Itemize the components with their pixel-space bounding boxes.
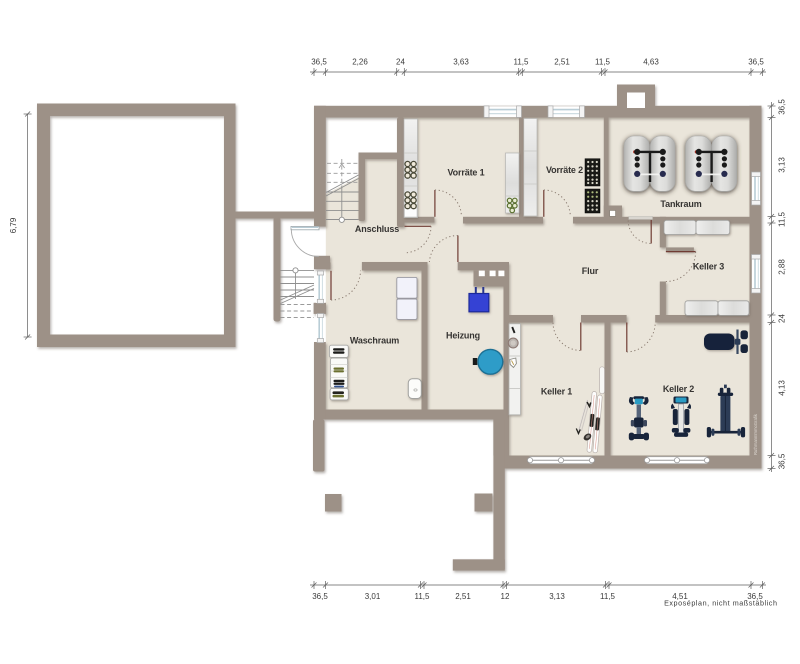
svg-text:36,5: 36,5 [748,58,764,67]
svg-text:Heizung: Heizung [446,331,480,341]
svg-text:12: 12 [501,592,510,601]
svg-text:Vorräte 2: Vorräte 2 [546,165,583,175]
svg-text:2,26: 2,26 [352,58,368,67]
svg-text:2,51: 2,51 [455,592,471,601]
svg-text:3,63: 3,63 [453,58,469,67]
svg-text:2,51: 2,51 [554,58,570,67]
svg-text:4,63: 4,63 [643,58,659,67]
svg-text:RuthmannImmoGrafik: RuthmannImmoGrafik [753,413,758,455]
svg-text:Keller 3: Keller 3 [693,262,724,272]
svg-text:11,5: 11,5 [514,58,530,67]
svg-text:24: 24 [396,58,405,67]
svg-text:11,5: 11,5 [600,592,616,601]
svg-text:36,5: 36,5 [778,453,787,469]
svg-text:3,13: 3,13 [778,157,787,173]
svg-text:Keller 2: Keller 2 [663,384,694,394]
svg-text:Flur: Flur [582,266,599,276]
svg-text:36,5: 36,5 [312,592,328,601]
svg-text:Vorräte 1: Vorräte 1 [447,168,484,178]
svg-text:3,01: 3,01 [365,592,381,601]
svg-text:6,79: 6,79 [9,217,18,233]
svg-text:3,13: 3,13 [549,592,565,601]
svg-text:36,5: 36,5 [778,99,787,115]
svg-text:11,5: 11,5 [778,211,787,227]
svg-text:Tankraum: Tankraum [660,199,701,209]
svg-text:Waschraum: Waschraum [350,336,399,346]
svg-text:24: 24 [778,314,787,323]
svg-text:2,88: 2,88 [778,259,787,275]
svg-text:36,5: 36,5 [311,58,327,67]
svg-text:Keller 1: Keller 1 [541,387,572,397]
svg-text:Anschluss: Anschluss [355,224,399,234]
svg-text:11,5: 11,5 [595,58,611,67]
svg-text:Exposéplan, nicht maßstäblich: Exposéplan, nicht maßstäblich [664,599,777,608]
svg-text:11,5: 11,5 [415,592,431,601]
svg-text:4,13: 4,13 [778,380,787,396]
